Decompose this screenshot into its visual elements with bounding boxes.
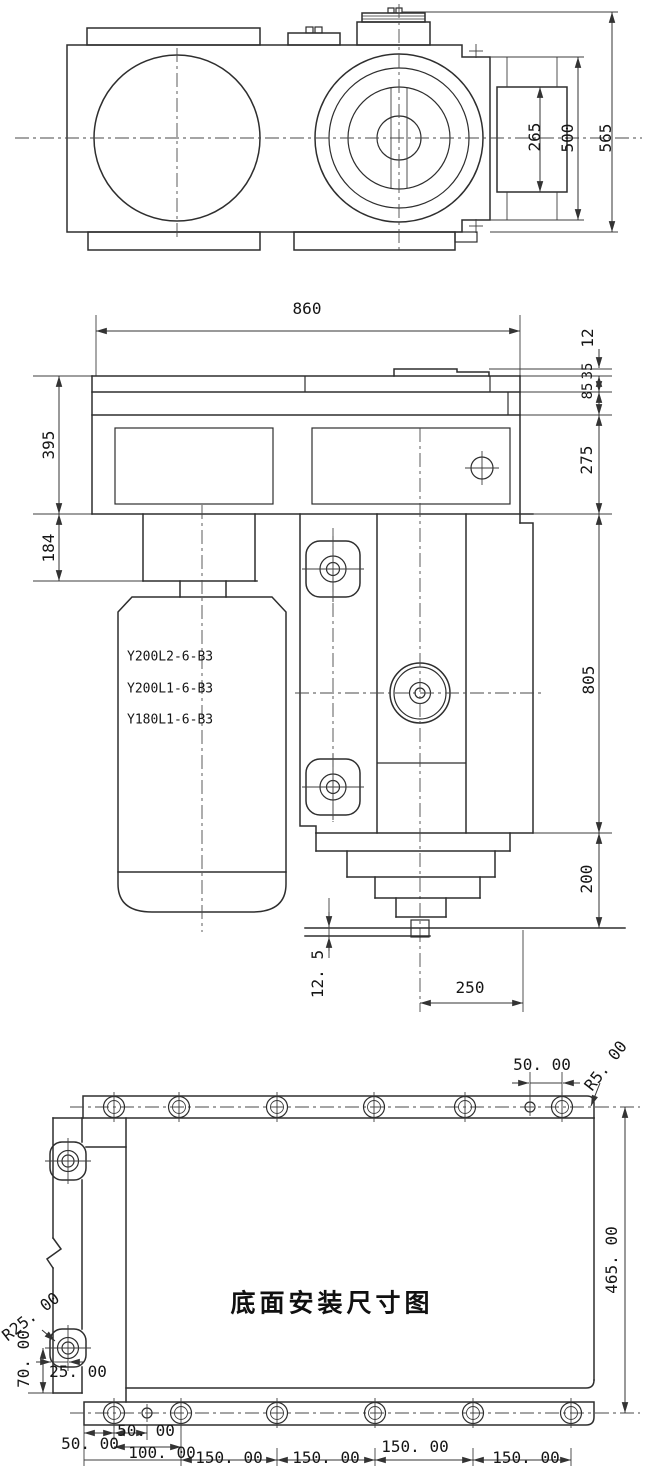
dim-150-d-label: 150. 00 <box>492 1450 559 1466</box>
dim-265-label: 265 <box>527 123 543 152</box>
inspection-cover-left <box>115 428 273 504</box>
tab-bolt-hole-upper <box>45 1138 91 1184</box>
gear-housing <box>295 428 545 1012</box>
dim-25-label: 25. 00 <box>49 1364 107 1380</box>
dim-100-label: 100. 00 <box>128 1445 195 1461</box>
oil-plug <box>465 451 499 485</box>
bottom-view <box>28 1072 640 1466</box>
top-view <box>15 4 642 252</box>
bottom-view-title: 底面安装尺寸图 <box>230 1291 433 1316</box>
dim-465-label: 465. 00 <box>604 1226 620 1293</box>
dim-50-b-label: 50. 00 <box>117 1423 175 1439</box>
dim-500-label: 500 <box>560 124 576 153</box>
input-shaft-block <box>357 22 430 45</box>
drawing-linework <box>0 0 650 1466</box>
dim-12-label: 12 <box>580 328 596 347</box>
dim-395-label: 395 <box>41 431 57 460</box>
dim-150-c-label: 150. 00 <box>381 1439 448 1455</box>
dim-565-label: 565 <box>598 124 614 153</box>
dim-250-label: 250 <box>456 980 485 996</box>
dim-860-label: 860 <box>293 301 322 317</box>
side-tab <box>45 1118 126 1393</box>
dim-184-label: 184 <box>41 534 57 563</box>
dim-275-label: 275 <box>579 446 595 475</box>
dim-805-label: 805 <box>581 666 597 695</box>
dim-200-label: 200 <box>579 865 595 894</box>
dim-35-label: 35 <box>581 363 595 380</box>
dim-150-a-label: 150. 00 <box>195 1450 262 1466</box>
front-view <box>33 315 625 1012</box>
dim-12p5-label: 12. 5 <box>310 950 326 998</box>
dim-150-b-label: 150. 00 <box>292 1450 359 1466</box>
motor-model-3: Y180L1-6-B3 <box>127 714 213 727</box>
dim-85-label: 85 <box>581 383 595 400</box>
motor-model-2: Y200L1-6-B3 <box>127 683 213 696</box>
dim-70-label: 70. 00 <box>16 1330 32 1388</box>
dim-50-a-label: 50. 00 <box>61 1436 119 1452</box>
inspection-cover-right <box>312 428 510 504</box>
technical-drawing-page: 265 500 565 860 12 35 85 275 805 200 395… <box>0 0 650 1466</box>
dim-50-top-label: 50. 00 <box>513 1057 571 1073</box>
motor-model-1: Y200L2-6-B3 <box>127 651 213 664</box>
